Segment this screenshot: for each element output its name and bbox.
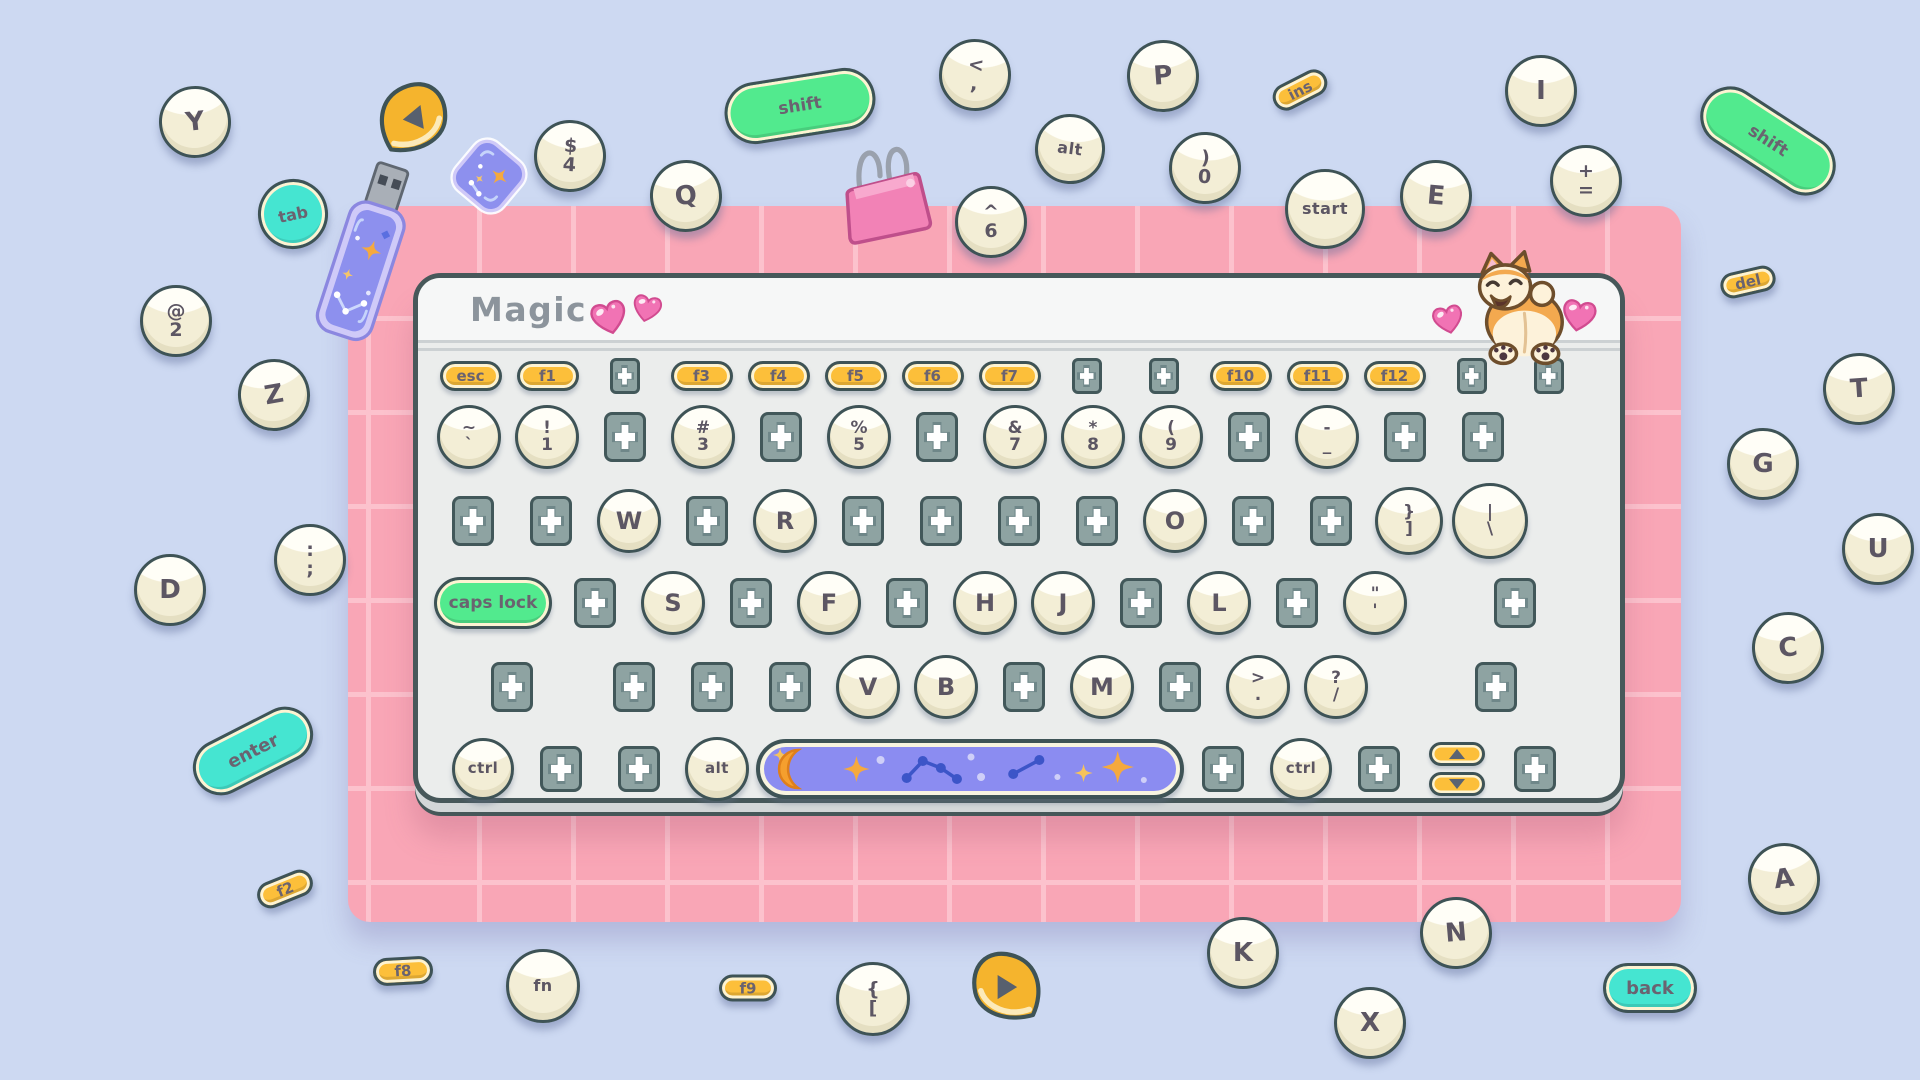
key-f2[interactable]: f2 <box>253 866 317 913</box>
key-fn[interactable]: fn <box>506 949 580 1023</box>
key-label: S <box>664 591 681 615</box>
key-cell <box>898 412 976 462</box>
key-:[interactable]: :; <box>274 524 346 596</box>
key-enter[interactable]: enter <box>183 697 322 805</box>
key-f8[interactable]: f8 <box>372 955 433 986</box>
key-cell <box>756 739 1184 799</box>
empty-slot[interactable] <box>842 496 884 546</box>
key-enter[interactable]: enter <box>183 697 322 805</box>
key-p[interactable]: P <box>1125 38 1202 115</box>
key-cell <box>595 662 673 712</box>
key-cell: *8 <box>1054 405 1132 469</box>
key-label: caps lock <box>449 593 538 613</box>
key-H[interactable]: H <box>953 571 1017 635</box>
key-x[interactable]: X <box>1334 987 1406 1059</box>
plus-icon <box>1465 368 1479 385</box>
key-f11[interactable]: f11 <box>1287 361 1349 391</box>
keyboard-row-lower: VBM>.?/ <box>473 651 1535 723</box>
key-i[interactable]: I <box>1505 55 1577 127</box>
key-cell: ?/ <box>1297 655 1375 719</box>
key-cell <box>742 412 820 462</box>
key-?[interactable]: ?/ <box>1304 655 1368 719</box>
empty-slot[interactable] <box>491 662 533 712</box>
key-cell <box>556 578 634 628</box>
key-label: fn <box>533 978 552 994</box>
empty-slot[interactable] <box>540 746 582 792</box>
key-a[interactable]: A <box>1743 838 1824 919</box>
key-symbol-bottom: = <box>1578 181 1594 200</box>
empty-slot[interactable] <box>1514 746 1556 792</box>
empty-slot[interactable] <box>730 578 772 628</box>
key-label: I <box>1536 78 1546 105</box>
key-label: T <box>1849 375 1869 403</box>
key-cell: B <box>907 655 985 719</box>
key-fn[interactable]: fn <box>506 949 580 1023</box>
key-equals[interactable]: += <box>1550 145 1622 217</box>
key-alt[interactable]: alt <box>1031 110 1109 188</box>
key-cell: !1 <box>508 405 586 469</box>
plus-icon <box>780 675 800 699</box>
spacebar-art <box>764 747 1176 791</box>
key-cell: esc <box>432 361 509 391</box>
key-label: f9 <box>740 979 757 997</box>
arrow-down-icon <box>1449 779 1465 789</box>
key-label: L <box>1211 591 1226 615</box>
key-M[interactable]: M <box>1070 655 1134 719</box>
key-label: D <box>159 577 181 604</box>
key-@[interactable]: @2 <box>140 285 212 357</box>
key-label: C <box>1777 634 1799 662</box>
key-cell: V <box>829 655 907 719</box>
key-f8[interactable]: f8 <box>372 955 433 986</box>
key-cell: f5 <box>817 361 894 391</box>
key-cell: (9 <box>1132 405 1210 469</box>
spacebar-key[interactable] <box>756 739 1184 799</box>
key-symbol-bottom: 8 <box>1087 437 1099 454</box>
key-R[interactable]: R <box>753 489 817 553</box>
empty-slot[interactable] <box>1358 746 1400 792</box>
media-key-left[interactable] <box>369 74 459 164</box>
key-symbol-bottom: 4 <box>562 156 577 176</box>
empty-slot[interactable] <box>998 496 1040 546</box>
plus-icon <box>853 509 873 533</box>
key-cell <box>1058 496 1136 546</box>
plus-icon <box>1170 675 1190 699</box>
key-symbol-bottom: _ <box>1323 437 1332 454</box>
empty-slot[interactable] <box>1475 662 1517 712</box>
keyboard-row-function: escf1f3f4f5f6f7f10f11f12 <box>432 358 1587 394</box>
key-F[interactable]: F <box>797 571 861 635</box>
key-%[interactable]: %5 <box>827 405 891 469</box>
key-q[interactable]: Q <box>645 155 726 236</box>
key-cell: f4 <box>740 361 817 391</box>
empty-slot[interactable] <box>1276 578 1318 628</box>
key-comma[interactable]: <, <box>935 35 1014 114</box>
plus-icon <box>1525 757 1545 781</box>
key-J[interactable]: J <box>1031 571 1095 635</box>
key-cell <box>1366 412 1444 462</box>
empty-slot[interactable] <box>1149 358 1179 394</box>
key-cell <box>1340 746 1418 792</box>
key-cell: |\ <box>1448 483 1532 559</box>
empty-slot[interactable] <box>691 662 733 712</box>
empty-slot[interactable] <box>1384 412 1426 462</box>
key-cell: }] <box>1370 487 1448 555</box>
key-&[interactable]: &7 <box>983 405 1047 469</box>
key-f4[interactable]: f4 <box>748 361 810 391</box>
key-label: N <box>1444 919 1468 947</box>
key-<[interactable]: <, <box>935 35 1014 114</box>
key-cell <box>751 662 829 712</box>
key-symbol-bottom: 2 <box>169 321 182 340</box>
key-f2[interactable]: f2 <box>253 866 317 913</box>
key-cell: J <box>1024 571 1102 635</box>
plus-icon <box>1213 757 1233 781</box>
key-back[interactable]: back <box>1603 963 1697 1013</box>
key-caps lock[interactable]: caps lock <box>434 577 552 629</box>
key-cell: R <box>746 489 824 553</box>
key-cell <box>673 662 751 712</box>
key-N[interactable]: N <box>1417 894 1495 972</box>
plus-icon <box>931 509 951 533</box>
arrow-keys[interactable] <box>1429 742 1485 796</box>
key-cell <box>1102 578 1180 628</box>
key-symbol-bottom: \ <box>1487 521 1493 538</box>
key-f9[interactable]: f9 <box>719 975 777 1002</box>
key-del[interactable]: del <box>1718 263 1778 301</box>
plus-icon <box>1239 425 1259 449</box>
key-I[interactable]: I <box>1505 55 1577 127</box>
key-ctrl[interactable]: ctrl <box>452 738 514 800</box>
key-E[interactable]: E <box>1397 157 1475 235</box>
empty-slot[interactable] <box>618 746 660 792</box>
key-d[interactable]: D <box>134 554 206 626</box>
key-label: f11 <box>1304 367 1331 385</box>
key-Q[interactable]: Q <box>645 155 726 236</box>
key-{[interactable]: {[ <box>836 962 910 1036</box>
key-symbol-bottom: , <box>969 75 978 95</box>
empty-slot[interactable] <box>1310 496 1352 546</box>
key-O[interactable]: O <box>1143 489 1207 553</box>
key-z[interactable]: Z <box>232 353 315 436</box>
key-~[interactable]: ~` <box>437 405 501 469</box>
key-c[interactable]: C <box>1748 608 1827 687</box>
key-W[interactable]: W <box>597 489 661 553</box>
key-#[interactable]: #3 <box>671 405 735 469</box>
key-}[interactable]: }] <box>1375 487 1443 555</box>
keyboard-row-number: ~`!1#3%5&7*8(9-_ <box>430 402 1522 472</box>
key-symbol-bottom: 3 <box>697 437 709 454</box>
key-shift-right[interactable]: shift <box>1689 75 1847 207</box>
empty-slot[interactable] <box>1003 662 1045 712</box>
empty-slot[interactable] <box>920 496 962 546</box>
key-label: f10 <box>1227 367 1254 385</box>
key-y[interactable]: Y <box>155 82 234 161</box>
key-t[interactable]: T <box>1821 351 1898 428</box>
key-cell <box>712 578 790 628</box>
key-label: G <box>1752 451 1773 478</box>
empty-slot[interactable] <box>916 412 958 462</box>
key-symbol-bottom: ; <box>306 560 314 579</box>
key-tab[interactable]: tab <box>251 172 334 255</box>
key-label: R <box>776 509 794 533</box>
key-label: O <box>1165 509 1185 533</box>
key-cell: caps lock <box>430 577 556 629</box>
key-cell <box>1418 742 1496 796</box>
key-alt[interactable]: alt <box>1031 110 1109 188</box>
game-stage: Magic escf1f3f4f5f6f7f10f11f12~`!1#3%5&7… <box>0 0 1920 1080</box>
heart-icon <box>1556 294 1602 337</box>
key-cell <box>985 662 1063 712</box>
key-g[interactable]: G <box>1727 428 1799 500</box>
key--[interactable]: -_ <box>1295 405 1359 469</box>
key-label: ins <box>1285 76 1315 103</box>
key-label: del <box>1733 270 1762 293</box>
key-cell: S <box>634 571 712 635</box>
key-G[interactable]: G <box>1727 428 1799 500</box>
key-label: f1 <box>539 367 556 385</box>
empty-slot[interactable] <box>1076 496 1118 546</box>
key-f12[interactable]: f12 <box>1364 361 1426 391</box>
key-bracket-open[interactable]: {[ <box>836 962 910 1036</box>
key-del[interactable]: del <box>1718 263 1778 301</box>
key-0[interactable]: )0 <box>1167 130 1243 206</box>
plus-icon <box>1087 509 1107 533</box>
empty-slot[interactable] <box>1202 746 1244 792</box>
empty-slot[interactable] <box>613 662 655 712</box>
plus-icon <box>697 509 717 533</box>
key-L[interactable]: L <box>1187 571 1251 635</box>
key-label: U <box>1867 536 1888 563</box>
key-cell: >. <box>1219 655 1297 719</box>
key-f5[interactable]: f5 <box>825 361 887 391</box>
key-k[interactable]: K <box>1207 917 1279 989</box>
heart-title-2 <box>627 289 667 326</box>
empty-slot[interactable] <box>1072 358 1102 394</box>
plus-icon <box>1157 368 1171 385</box>
key-f7[interactable]: f7 <box>979 361 1041 391</box>
key-cell: ~` <box>430 405 508 469</box>
key-label: Y <box>184 108 205 136</box>
key-cell: H <box>946 571 1024 635</box>
empty-slot[interactable] <box>1232 496 1274 546</box>
key-+[interactable]: += <box>1550 145 1622 217</box>
plus-icon <box>502 675 522 699</box>
key-cell: O <box>1136 489 1214 553</box>
empty-slot[interactable] <box>760 412 802 462</box>
empty-slot[interactable] <box>1494 578 1536 628</box>
key-label: alt <box>705 761 729 776</box>
key-ins[interactable]: ins <box>1268 65 1332 115</box>
key-cell: %5 <box>820 405 898 469</box>
key-u[interactable]: U <box>1842 513 1914 585</box>
key-cell <box>1048 358 1125 394</box>
key-alt[interactable]: alt <box>685 737 749 801</box>
key-K[interactable]: K <box>1207 917 1279 989</box>
empty-slot[interactable] <box>1120 578 1162 628</box>
key-label: tab <box>276 202 309 227</box>
keyboard-base: Magic escf1f3f4f5f6f7f10f11f12~`!1#3%5&7… <box>413 273 1625 803</box>
key-cell <box>868 578 946 628</box>
heart-corgi-right <box>1556 294 1602 337</box>
key-shift[interactable]: shift <box>1689 75 1847 207</box>
key-label: f8 <box>394 962 412 981</box>
key-f1[interactable]: f1 <box>517 361 579 391</box>
key-ctrl[interactable]: ctrl <box>1270 738 1332 800</box>
plus-icon <box>771 425 791 449</box>
empty-slot[interactable] <box>1462 412 1504 462</box>
empty-slot[interactable] <box>530 496 572 546</box>
key-symbol-bottom: 7 <box>1009 437 1021 454</box>
key-start[interactable]: start <box>1285 169 1365 249</box>
empty-slot[interactable] <box>574 578 616 628</box>
media-key[interactable] <box>966 948 1046 1028</box>
empty-slot[interactable] <box>610 358 640 394</box>
plus-icon <box>1395 425 1415 449</box>
key-P[interactable]: P <box>1125 38 1202 115</box>
key-start[interactable]: start <box>1285 169 1365 249</box>
key-f6[interactable]: f6 <box>902 361 964 391</box>
keyboard-row-upper: WRO}]|\ <box>434 485 1532 557</box>
empty-slot[interactable] <box>1228 412 1270 462</box>
plus-icon <box>1505 591 1525 615</box>
key-symbol-bottom: 6 <box>984 222 997 241</box>
key-C[interactable]: C <box>1748 608 1827 687</box>
night-sky-spacebar-art <box>764 747 1176 791</box>
key-^[interactable]: ^6 <box>955 186 1027 258</box>
plus-icon <box>541 509 561 533</box>
empty-slot[interactable] <box>452 496 494 546</box>
key-cell <box>1496 746 1574 792</box>
key-label: shift <box>1744 121 1791 162</box>
plus-icon <box>1014 675 1034 699</box>
key-label: esc <box>457 367 485 385</box>
key-f9[interactable]: f9 <box>719 975 777 1002</box>
empty-slot[interactable] <box>886 578 928 628</box>
plus-icon <box>927 425 947 449</box>
key-label: A <box>1772 864 1796 893</box>
key-cell: ctrl <box>1262 738 1340 800</box>
key-label: shift <box>777 93 823 120</box>
key-T[interactable]: T <box>1821 351 1898 428</box>
key->[interactable]: >. <box>1226 655 1290 719</box>
key-V[interactable]: V <box>836 655 900 719</box>
key-esc[interactable]: esc <box>440 361 502 391</box>
media-key-right[interactable] <box>966 948 1046 1028</box>
key-cell: f12 <box>1356 361 1433 391</box>
key-symbol-bottom: . <box>1255 687 1261 704</box>
key-*[interactable]: *8 <box>1061 405 1125 469</box>
media-key[interactable] <box>369 74 459 164</box>
plus-icon <box>551 757 571 781</box>
plus-icon <box>615 425 635 449</box>
plus-icon <box>1321 509 1341 533</box>
key-cell <box>512 496 590 546</box>
keyboard-rows: escf1f3f4f5f6f7f10f11f12~`!1#3%5&7*8(9-_… <box>418 278 1620 798</box>
arrow-up-button[interactable] <box>1429 742 1485 766</box>
key-label: F <box>821 591 837 615</box>
key-cell: ctrl <box>444 738 522 800</box>
key-cell: L <box>1180 571 1258 635</box>
key-label: enter <box>224 729 282 773</box>
key-S[interactable]: S <box>641 571 705 635</box>
key-label: f3 <box>693 367 710 385</box>
key-)[interactable]: )0 <box>1167 130 1243 206</box>
key-4[interactable]: $4 <box>532 118 609 195</box>
key-cell: f11 <box>1279 361 1356 391</box>
key-cell: #3 <box>664 405 742 469</box>
key-back[interactable]: back <box>1603 963 1697 1013</box>
key-label: K <box>1233 940 1253 967</box>
plus-icon <box>585 591 605 615</box>
key-symbol-bottom: / <box>1333 687 1339 704</box>
key-semicolon[interactable]: :; <box>274 524 346 596</box>
key-A[interactable]: A <box>1743 838 1824 919</box>
key-n[interactable]: N <box>1417 894 1495 972</box>
key-![interactable]: !1 <box>515 405 579 469</box>
binder-clip-icon <box>827 113 944 253</box>
key-f3[interactable]: f3 <box>671 361 733 391</box>
arrow-down-button[interactable] <box>1429 772 1485 796</box>
key-e[interactable]: E <box>1397 157 1475 235</box>
plus-icon <box>629 757 649 781</box>
key-symbol-bottom: 9 <box>1165 437 1177 454</box>
empty-slot[interactable] <box>1159 662 1201 712</box>
key-label: H <box>975 591 995 615</box>
key-label: f2 <box>274 877 296 900</box>
key-"[interactable]: "' <box>1343 571 1407 635</box>
key-cell: W <box>590 489 668 553</box>
empty-slot[interactable] <box>604 412 646 462</box>
key-Y[interactable]: Y <box>155 82 234 161</box>
key-cell: -_ <box>1288 405 1366 469</box>
key-cell <box>522 746 600 792</box>
media-key-icon <box>966 948 1046 1028</box>
key-label: start <box>1302 201 1348 217</box>
key-D[interactable]: D <box>134 554 206 626</box>
plus-icon <box>1009 509 1029 533</box>
key-cell: f1 <box>509 361 586 391</box>
key-|[interactable]: |\ <box>1452 483 1528 559</box>
plus-icon <box>702 675 722 699</box>
key-cell <box>902 496 980 546</box>
plus-icon <box>741 591 761 615</box>
key-6[interactable]: ^6 <box>955 186 1027 258</box>
key-ins[interactable]: ins <box>1268 65 1332 115</box>
key-label: f6 <box>924 367 941 385</box>
key-Z[interactable]: Z <box>232 353 315 436</box>
key-X[interactable]: X <box>1334 987 1406 1059</box>
key-label: B <box>937 675 955 699</box>
key-2[interactable]: @2 <box>140 285 212 357</box>
key-U[interactable]: U <box>1842 513 1914 585</box>
key-([interactable]: (9 <box>1139 405 1203 469</box>
key-label: Z <box>262 380 285 409</box>
key-cell <box>980 496 1058 546</box>
key-label: V <box>859 675 878 699</box>
keyboard-row-modifier: ctrlaltctrl <box>444 734 1574 804</box>
key-symbol-bottom: ' <box>1372 603 1377 620</box>
key-$[interactable]: $4 <box>532 118 609 195</box>
empty-slot[interactable] <box>769 662 811 712</box>
key-label: ctrl <box>1286 761 1317 776</box>
key-cell: f3 <box>663 361 740 391</box>
key-f10[interactable]: f10 <box>1210 361 1272 391</box>
key-tab[interactable]: tab <box>251 172 334 255</box>
key-B[interactable]: B <box>914 655 978 719</box>
key-cell <box>1292 496 1370 546</box>
empty-slot[interactable] <box>686 496 728 546</box>
